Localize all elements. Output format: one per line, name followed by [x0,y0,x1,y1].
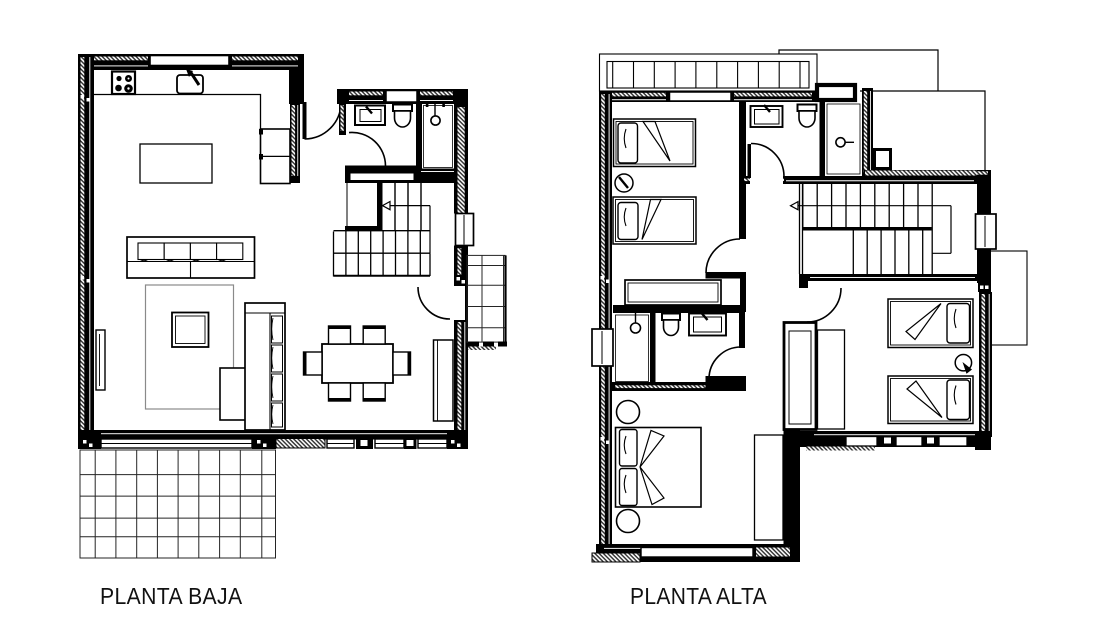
svg-text:PLANTA BAJA: PLANTA BAJA [100,583,243,609]
svg-text:PLANTA ALTA: PLANTA ALTA [630,583,767,609]
